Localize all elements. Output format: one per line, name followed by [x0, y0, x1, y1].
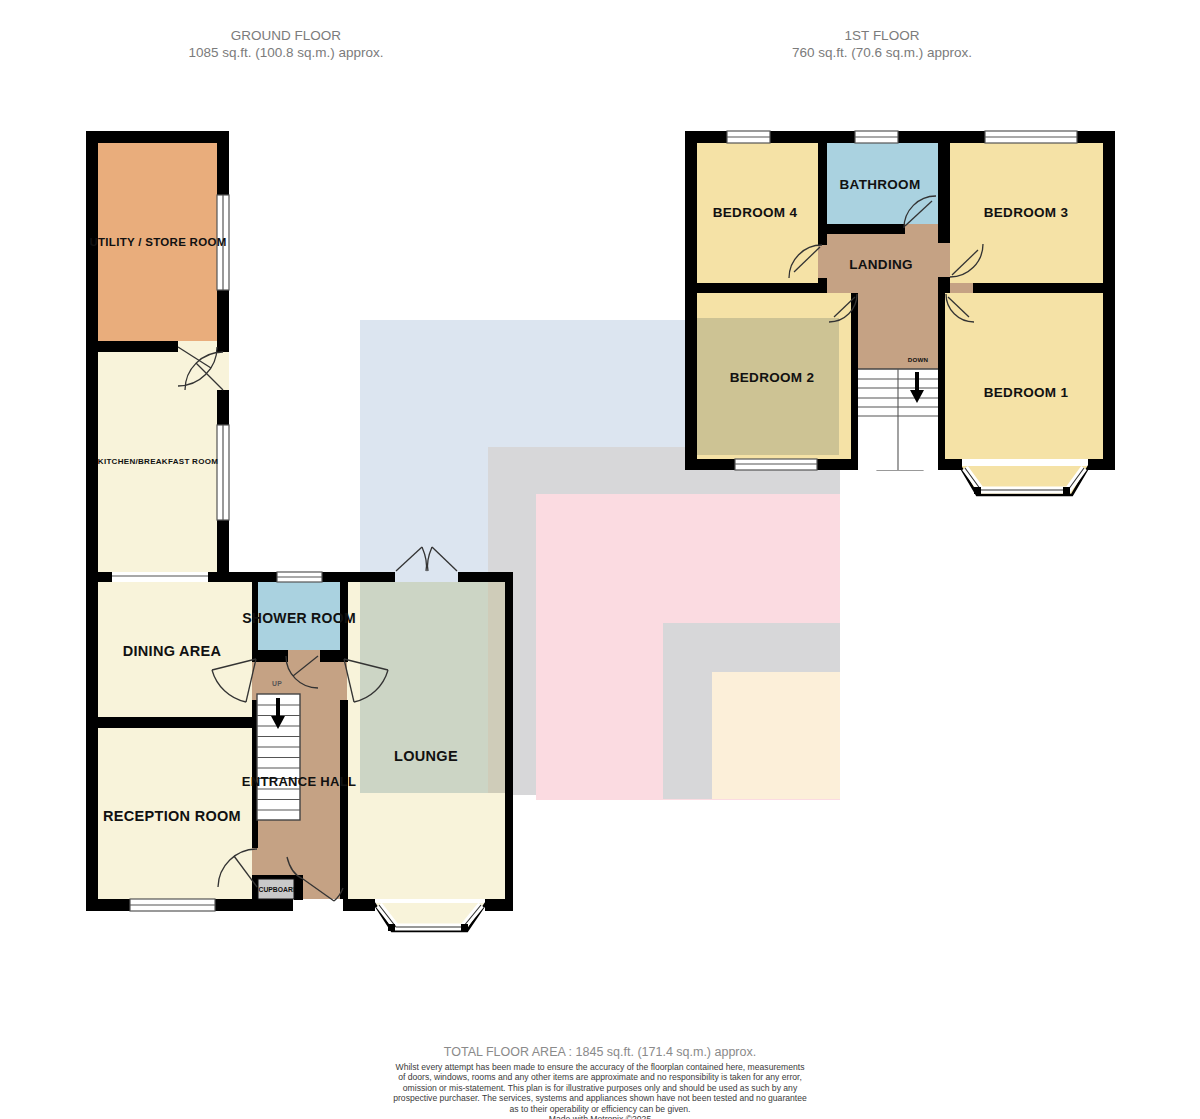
disclaimer-line: Whilst every attempt has been made to en…	[0, 1062, 1200, 1072]
disclaimer: Whilst every attempt has been made to en…	[0, 1062, 1200, 1119]
label-bedroom3: BEDROOM 3	[984, 205, 1068, 220]
label-dining: DINING AREA	[123, 643, 222, 659]
disclaimer-line: omission or mis-statement. This plan is …	[0, 1083, 1200, 1093]
bedroom3-door-threshold	[938, 243, 950, 277]
room-bedroom1	[945, 293, 1103, 459]
label-shower: SHOWER ROOM	[242, 610, 356, 626]
kitchen-window	[217, 425, 229, 520]
label-kitchen: KITCHEN/BREAKFAST ROOM	[98, 457, 218, 466]
disclaimer-line: prospective purchaser. The services, sys…	[0, 1093, 1200, 1103]
metropix-credit: Made with Metropix ©2025	[0, 1114, 1200, 1119]
disclaimer-line: of doors, windows, rooms and any other i…	[0, 1072, 1200, 1082]
total-floor-area: TOTAL FLOOR AREA : 1845 sq.ft. (171.4 sq…	[0, 1045, 1200, 1059]
ground-floor-area: 1085 sq.ft. (100.8 sq.m.) approx.	[96, 44, 476, 61]
bedroom2-window	[735, 459, 817, 470]
label-bedroom4: BEDROOM 4	[713, 205, 797, 220]
label-cupboard: CUPBOARD	[259, 886, 294, 893]
first-floor-title: 1ST FLOOR	[692, 27, 1072, 44]
label-down: DOWN	[908, 356, 928, 363]
bedroom4-window	[727, 131, 770, 143]
ground-floor-title: GROUND FLOOR	[96, 27, 476, 44]
bedroom2-watermark-tint	[697, 318, 839, 455]
bathroom-door-threshold	[905, 224, 938, 234]
first-floor-stairs	[858, 369, 938, 470]
bedroom4-door-threshold	[818, 245, 827, 278]
label-landing: LANDING	[849, 257, 913, 272]
first-floor-area: 760 sq.ft. (70.6 sq.m.) approx.	[692, 44, 1072, 61]
floorplan-drawing	[0, 0, 1200, 1119]
disclaimer-line: as to their operability or efficiency ca…	[0, 1104, 1200, 1114]
ground-stairs	[257, 694, 300, 820]
shower-window	[277, 572, 322, 582]
side-door-threshold	[217, 352, 229, 390]
ground-floor-header: GROUND FLOOR 1085 sq.ft. (100.8 sq.m.) a…	[96, 27, 476, 61]
label-lounge: LOUNGE	[394, 748, 458, 764]
label-utility: UTILITY / STORE ROOM	[89, 236, 226, 248]
label-entrance: ENTRANCE HALL	[242, 774, 356, 789]
reception-window	[130, 899, 215, 911]
label-up: UP	[272, 680, 282, 687]
bedroom2-door-threshold	[827, 283, 857, 293]
floorplan-page: GROUND FLOOR 1085 sq.ft. (100.8 sq.m.) a…	[0, 0, 1200, 1119]
kitchen-dining-opening-line	[112, 575, 208, 577]
lounge-watermark-tint-gray	[488, 582, 505, 793]
label-bathroom: BATHROOM	[840, 177, 921, 192]
label-bedroom2: BEDROOM 2	[730, 370, 814, 385]
label-bedroom1: BEDROOM 1	[984, 385, 1068, 400]
first-floor-header: 1ST FLOOR 760 sq.ft. (70.6 sq.m.) approx…	[692, 27, 1072, 61]
label-reception: RECEPTION ROOM	[103, 808, 241, 824]
shower-door-threshold	[288, 650, 320, 662]
bedroom3-window	[985, 131, 1077, 143]
watermark-cream	[712, 672, 840, 799]
bathroom-window	[855, 131, 898, 143]
